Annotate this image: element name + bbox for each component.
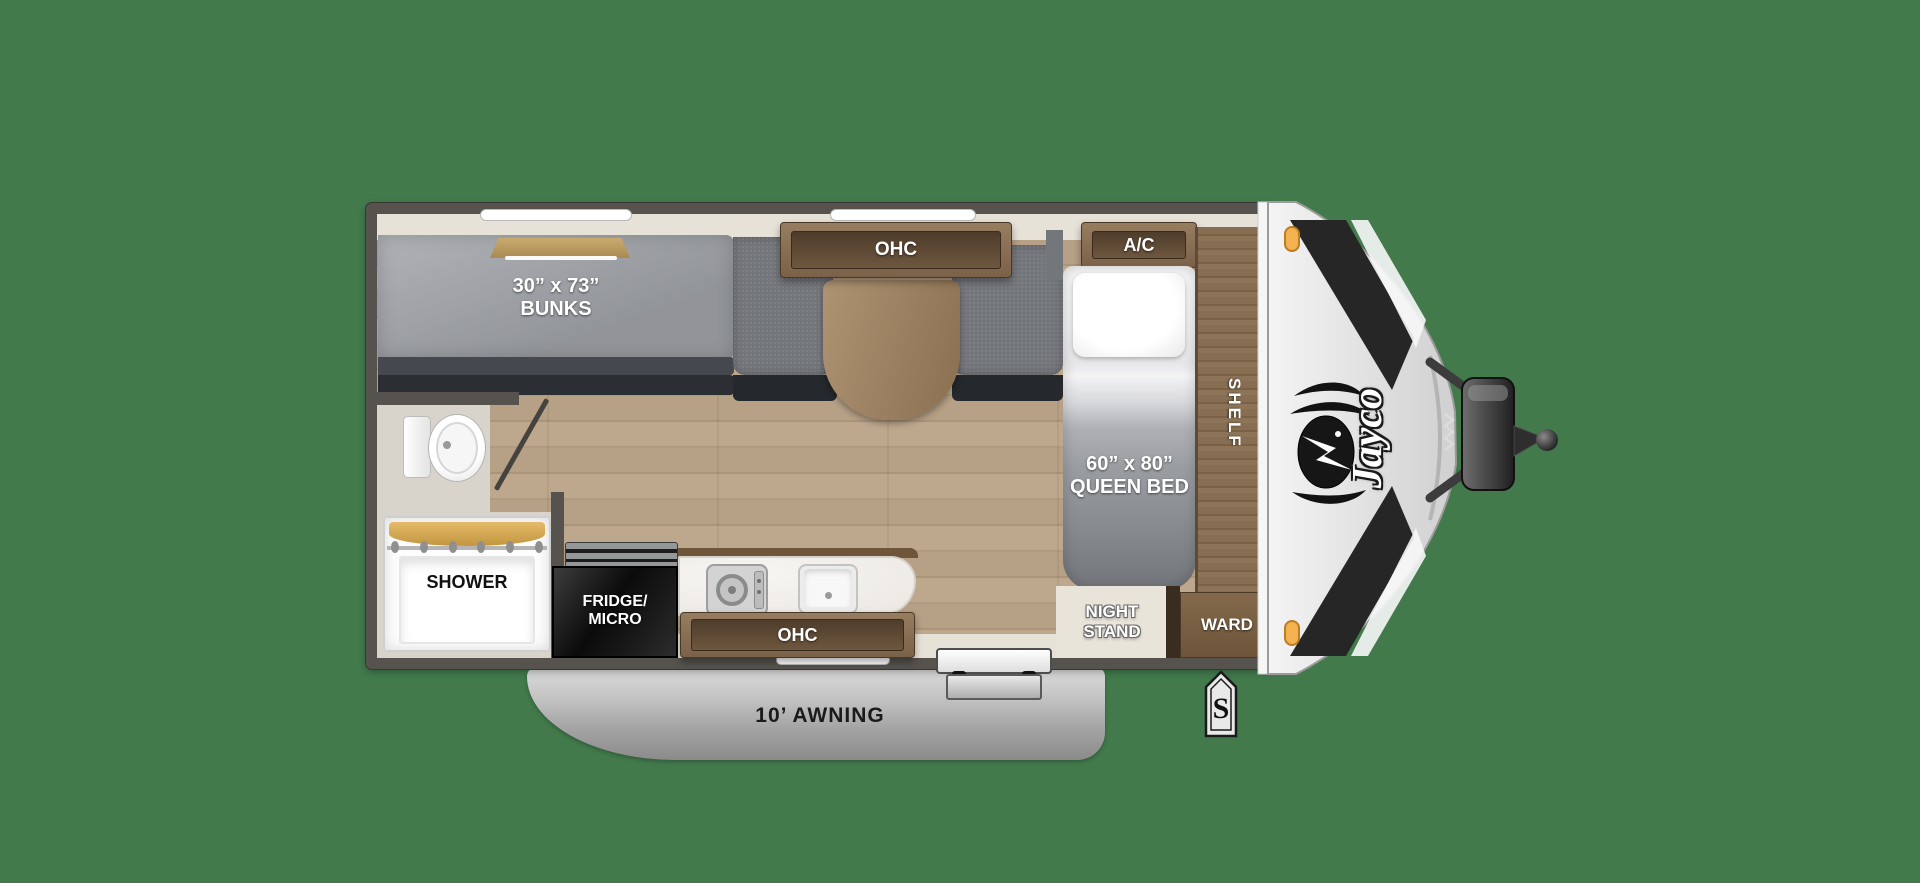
bunk-overhead-vent <box>490 238 630 258</box>
bunk-edge <box>378 357 734 375</box>
ward-divider <box>1166 586 1180 658</box>
ac-label: A/C <box>1124 235 1155 256</box>
floorplan-image: 10’ AWNING 30” x 73” BUNKS SHOWER OHC A/… <box>0 0 1920 883</box>
dinette-bench-left-base <box>733 375 837 401</box>
sink-basin <box>804 569 852 607</box>
jayco-wordmark: Jayco <box>1342 362 1394 514</box>
shelf-label: SHELF <box>1224 378 1244 449</box>
kitchen-ohc-label: OHC <box>778 625 818 646</box>
night-stand-label: NIGHT STAND <box>1058 594 1166 650</box>
tank-highlight <box>1468 385 1508 401</box>
entry-step-2 <box>946 674 1042 700</box>
hitch-assembly <box>1425 348 1575 512</box>
wardrobe-label: WARD <box>1201 615 1253 635</box>
queen-bed-label: 60” x 80” QUEEN BED <box>1063 448 1196 504</box>
fridge-micro-label: FRIDGE/ MICRO <box>552 588 678 634</box>
bed-pillow <box>1073 273 1185 357</box>
dinette-overhead-cabinet: OHC <box>780 222 1012 278</box>
stabilizer-badge: S <box>1204 670 1238 738</box>
jayco-wordmark-text: Jayco <box>1344 388 1392 488</box>
dinette-bench-right-back <box>1046 230 1063 280</box>
cap-marker-bottom <box>1284 620 1300 646</box>
sink-drain <box>825 592 832 599</box>
kitchen-ohc-panel: OHC <box>691 619 904 651</box>
window-top-right <box>830 209 976 221</box>
cap-marker-top <box>1284 226 1300 252</box>
ac-panel: A/C <box>1092 231 1186 259</box>
dinette-bench-right-base <box>952 375 1063 401</box>
dinette-ohc-panel: OHC <box>791 231 1001 269</box>
awning-label: 10’ AWNING <box>700 703 940 729</box>
window-top-left <box>480 209 632 221</box>
shower-label: SHOWER <box>393 570 541 594</box>
dinette-table <box>823 280 960 420</box>
toilet-tank <box>403 416 431 478</box>
ac-cabinet: A/C <box>1081 222 1197 268</box>
stove-controls <box>754 571 764 609</box>
fridge-vent <box>565 542 678 568</box>
stove-burner-center <box>728 586 736 594</box>
coupler-ball <box>1536 429 1558 451</box>
shower-curtain-hooks <box>391 541 543 553</box>
tongue-jack-crank <box>1445 414 1453 450</box>
stabilizer-label: S <box>1213 692 1230 725</box>
toilet-seat <box>436 422 478 474</box>
toilet-flush <box>443 441 451 449</box>
bathroom-wall <box>377 392 519 405</box>
kitchen-overhead-cabinet: OHC <box>680 612 915 658</box>
bunks-label: 30” x 73” BUNKS <box>378 268 734 328</box>
dinette-ohc-label: OHC <box>875 239 917 261</box>
bunk-vent-highlight <box>505 256 617 260</box>
